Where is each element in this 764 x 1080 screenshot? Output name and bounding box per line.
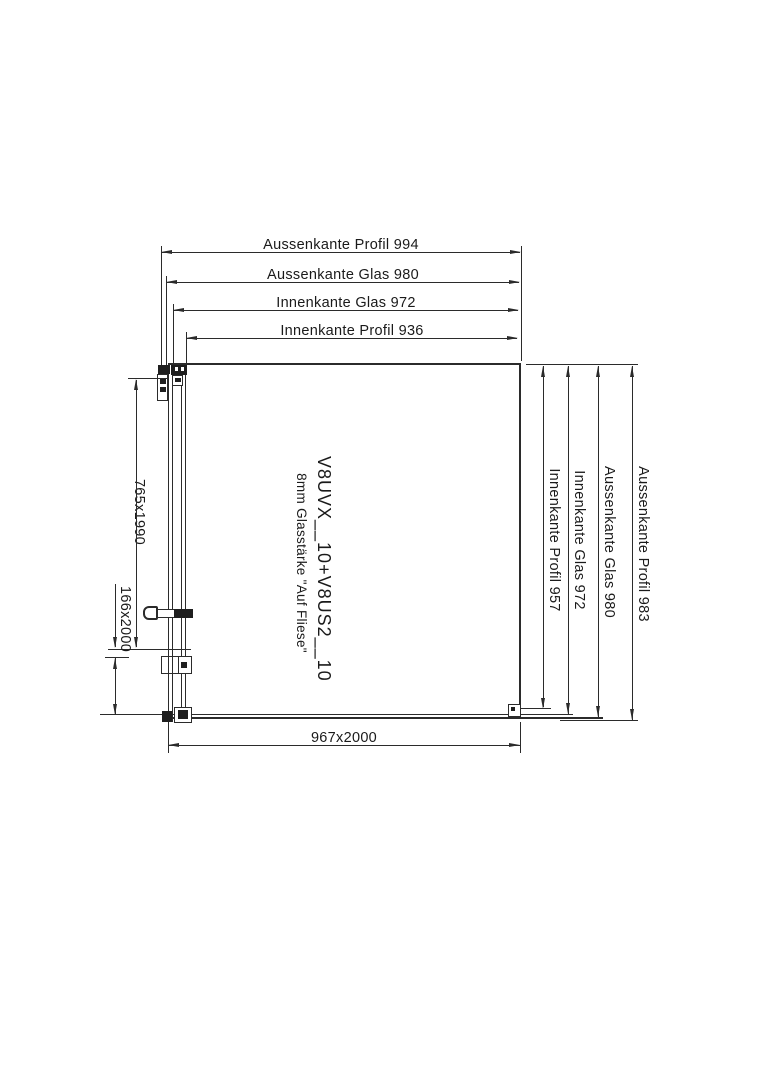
arrow-down-icon	[630, 709, 634, 720]
extension-line	[161, 246, 162, 368]
bottom-fitting	[162, 711, 172, 722]
panel-bottom-edge-outer	[168, 717, 603, 719]
dim-line-top-1	[162, 252, 520, 253]
dim-label-967x2000: 967x2000	[311, 730, 377, 746]
arrow-left-icon	[173, 308, 184, 312]
dim-line-door	[136, 380, 137, 647]
model-designation-label: V8UVX__10+V8US2__10	[312, 456, 334, 671]
arrow-down-icon	[566, 703, 570, 714]
fitting-detail	[178, 710, 188, 719]
dim-label-innenkante-profil-936: Innenkante Profil 936	[280, 323, 423, 339]
arrow-right-icon	[510, 250, 521, 254]
dim-label-166x2000: 166x2000	[117, 586, 133, 646]
panel-top-edge	[168, 363, 521, 365]
extension-line	[128, 378, 169, 379]
top-bracket	[171, 365, 187, 375]
extension-line	[560, 720, 638, 721]
arrow-down-icon	[134, 637, 138, 648]
extension-line	[105, 657, 129, 658]
dim-label-aussenkante-profil-983: Aussenkante Profil 983	[635, 459, 651, 629]
hinge-division-line	[168, 657, 169, 673]
panel-right-edge	[519, 363, 521, 718]
arrow-up-icon	[113, 658, 117, 669]
extension-line	[521, 708, 551, 709]
glass-thickness-label: 8mm Glasstärke "Auf Fliese"	[293, 470, 309, 656]
hinge-pin	[181, 662, 187, 668]
dim-line-right-4	[632, 366, 633, 720]
dim-line-right-2	[568, 366, 569, 714]
dim-line-bottom	[169, 745, 520, 746]
arrow-down-icon	[113, 704, 117, 715]
hinge-division-line	[172, 657, 173, 673]
arrow-right-icon	[509, 280, 520, 284]
door-handle-mount	[174, 609, 193, 618]
dim-label-765x1990: 765x1990	[131, 478, 147, 546]
bracket-notch	[175, 367, 178, 371]
extension-line	[521, 246, 522, 361]
extension-line	[166, 276, 167, 368]
arrow-up-icon	[630, 366, 634, 377]
dim-line-right-3	[598, 366, 599, 717]
extension-line	[168, 722, 169, 753]
hinge-detail	[175, 378, 181, 382]
dim-label-aussenkante-profil-994: Aussenkante Profil 994	[263, 237, 419, 253]
arrow-left-icon	[166, 280, 177, 284]
dim-label-aussenkante-glas-980: Aussenkante Glas 980	[601, 457, 617, 627]
lower-hinge-body	[161, 656, 192, 674]
dim-label-innenkante-glas-972: Innenkante Glas 972	[276, 295, 416, 311]
arrow-right-icon	[508, 308, 519, 312]
hinge-division-line	[178, 657, 179, 673]
arrow-left-icon	[161, 250, 172, 254]
dim-line-right-1	[543, 366, 544, 707]
extension-line	[526, 364, 638, 365]
dim-line-top-4	[187, 338, 517, 339]
door-handle-shaft	[157, 609, 175, 618]
arrow-down-icon	[113, 637, 117, 648]
arrow-down-icon	[596, 706, 600, 717]
door-handle-knob	[143, 606, 158, 620]
bracket-notch	[181, 367, 184, 371]
dim-label-aussenkante-glas-980: Aussenkante Glas 980	[267, 267, 419, 283]
arrow-up-icon	[596, 366, 600, 377]
dim-line-top-2	[167, 282, 519, 283]
dim-label-innenkante-glas-972: Innenkante Glas 972	[571, 455, 587, 625]
arrow-up-icon	[566, 366, 570, 377]
arrow-left-icon	[168, 743, 179, 747]
arrow-up-icon	[134, 379, 138, 390]
arrow-right-icon	[509, 743, 520, 747]
hinge-detail	[160, 387, 166, 392]
arrow-right-icon	[507, 336, 518, 340]
extension-line	[520, 722, 521, 753]
technical-drawing: Aussenkante Profil 994 Aussenkante Glas …	[0, 0, 764, 1080]
top-bracket	[158, 365, 170, 374]
dim-label-innenkante-profil-957: Innenkante Profil 957	[546, 455, 562, 625]
fitting-detail	[511, 707, 515, 711]
arrow-up-icon	[541, 366, 545, 377]
arrow-left-icon	[186, 336, 197, 340]
dim-line-top-3	[174, 310, 518, 311]
